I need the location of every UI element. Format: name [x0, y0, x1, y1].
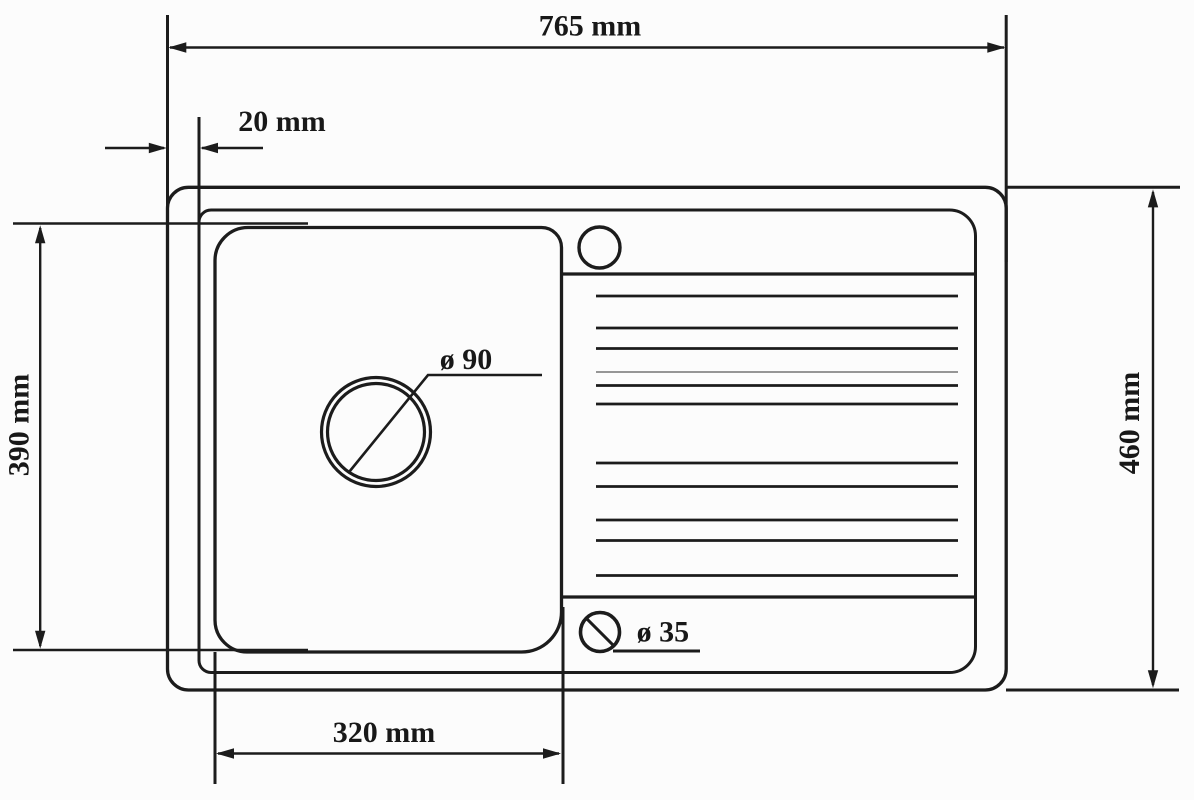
svg-text:390 mm: 390 mm	[3, 374, 36, 476]
svg-text:ø 90: ø 90	[440, 343, 493, 376]
svg-text:ø 35: ø 35	[637, 616, 690, 649]
svg-text:20 mm: 20 mm	[238, 105, 325, 138]
svg-text:320 mm: 320 mm	[333, 716, 435, 749]
svg-text:460 mm: 460 mm	[1113, 372, 1146, 474]
svg-text:765 mm: 765 mm	[539, 10, 641, 43]
